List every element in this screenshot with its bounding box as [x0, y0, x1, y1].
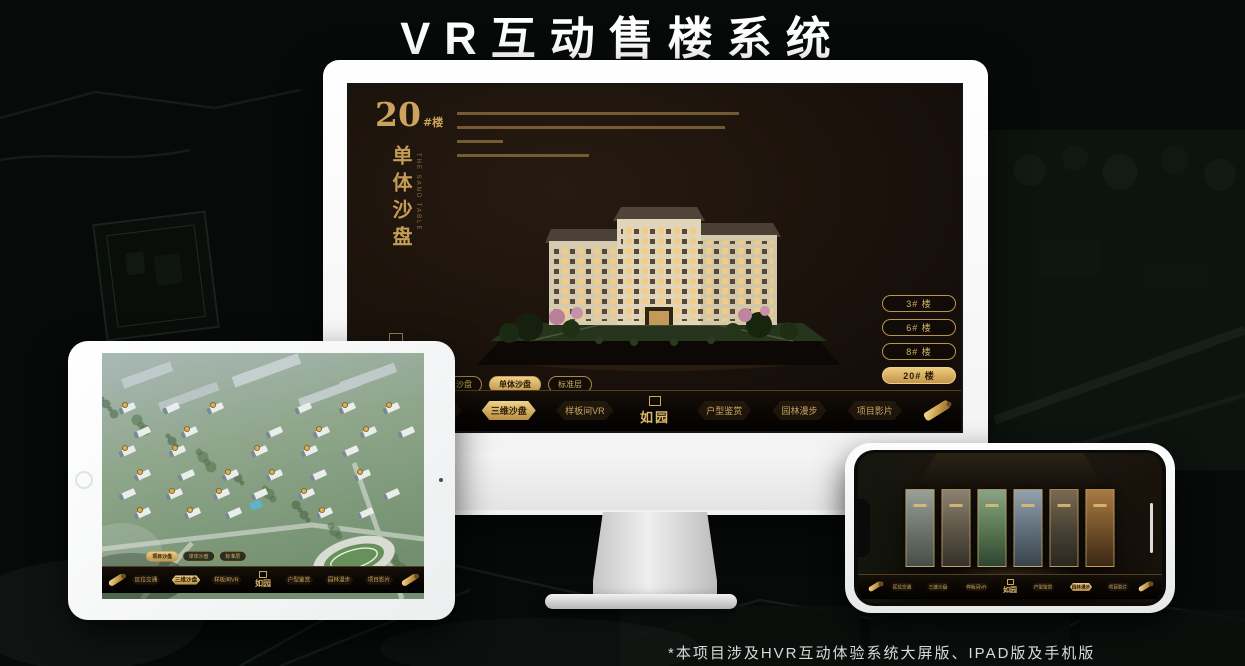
- nav-item[interactable]: 园林漫步: [325, 575, 354, 585]
- camera-dot-icon: [439, 478, 443, 482]
- nav-items: 区位交通三维沙盘样板间VR: [882, 581, 997, 593]
- floor-button[interactable]: 3# 楼: [882, 295, 956, 312]
- section-subtitle-en: THE SAND TABLE: [415, 153, 421, 231]
- nav-item[interactable]: 区位交通: [890, 583, 912, 591]
- logo-seal-icon: [259, 571, 267, 578]
- scroll-icon[interactable]: [868, 581, 883, 593]
- nav-item[interactable]: 项目影片: [1107, 583, 1129, 591]
- nav-item[interactable]: 户型鉴赏: [697, 401, 751, 420]
- iphone-device: 区位交通三维沙盘样板间VR如园户型鉴赏园林漫步项目影片: [845, 443, 1175, 613]
- gallery-panel[interactable]: [942, 489, 971, 567]
- masterplan-aerial-render[interactable]: [102, 353, 424, 599]
- app-logo-text: 如园: [1003, 585, 1017, 595]
- gallery-panels: [906, 489, 1115, 567]
- scroll-icon[interactable]: [1138, 581, 1153, 593]
- floor-button[interactable]: 20# 楼: [882, 367, 956, 384]
- subtab[interactable]: 标准层: [219, 551, 246, 562]
- phone-navbar: 区位交通三维沙盘样板间VR如园户型鉴赏园林漫步项目影片: [858, 574, 1162, 599]
- scene-ceiling: [918, 453, 1102, 485]
- gallery-panel[interactable]: [1086, 489, 1115, 567]
- nav-item[interactable]: 项目影片: [848, 401, 902, 420]
- monitor-stand-base: [545, 594, 737, 609]
- floor-button[interactable]: 6# 楼: [882, 319, 956, 336]
- poster-canvas: VR互动售楼系统 20#楼 单体沙盘 THE SAND TABLE: [0, 0, 1245, 666]
- scroll-icon[interactable]: [108, 572, 126, 586]
- nav-item[interactable]: 三维沙盘: [171, 575, 200, 585]
- nav-items: 户型鉴赏园林漫步项目影片: [277, 574, 401, 586]
- nav-item[interactable]: 样板间VR: [964, 583, 988, 591]
- gallery-panel[interactable]: [1014, 489, 1043, 567]
- gallery-panel[interactable]: [906, 489, 935, 567]
- app-logo: 如园: [249, 571, 277, 589]
- nav-item[interactable]: 户型鉴赏: [285, 575, 314, 585]
- nav-item[interactable]: 三维沙盘: [482, 401, 536, 420]
- footnote-caption: *本项目涉及HVR互动体验系统大屏版、IPAD版及手机版: [668, 642, 1095, 663]
- nav-item[interactable]: 园林漫步: [1069, 583, 1091, 591]
- nav-item[interactable]: 项目影片: [365, 575, 394, 585]
- app-logo-text: 如园: [640, 407, 670, 426]
- section-title-vertical: 单体沙盘: [387, 145, 416, 253]
- building-3d-render[interactable]: [449, 157, 869, 377]
- app-logo-text: 如园: [255, 578, 271, 589]
- app-logo: 如园: [634, 396, 676, 426]
- ipad-subtabs: 项目沙盘单体沙盘标准层: [146, 551, 246, 562]
- phone-screen: 区位交通三维沙盘样板间VR如园户型鉴赏园林漫步项目影片: [858, 453, 1162, 603]
- home-button[interactable]: [75, 471, 93, 489]
- scroll-icon[interactable]: [401, 572, 419, 586]
- scroll-icon[interactable]: [923, 399, 952, 421]
- building-number-title: 20#楼: [375, 95, 443, 134]
- nav-item[interactable]: 户型鉴赏: [1032, 583, 1054, 591]
- floor-button[interactable]: 8# 楼: [882, 343, 956, 360]
- nav-items: 区位交通三维沙盘样板间VR: [125, 574, 249, 586]
- notch: [858, 499, 870, 557]
- subtab[interactable]: 项目沙盘: [146, 551, 178, 562]
- logo-seal-icon: [649, 396, 661, 406]
- nav-items: 户型鉴赏园林漫步项目影片: [1023, 581, 1138, 593]
- subtab[interactable]: 单体沙盘: [183, 551, 215, 562]
- nav-item[interactable]: 三维沙盘: [927, 583, 949, 591]
- ipad-navbar: 区位交通三维沙盘样板间VR如园户型鉴赏园林漫步项目影片: [102, 566, 424, 593]
- monitor-stand-neck: [593, 512, 717, 598]
- home-indicator[interactable]: [1150, 503, 1153, 553]
- gallery-panel[interactable]: [978, 489, 1007, 567]
- ipad-device: 项目沙盘单体沙盘标准层 区位交通三维沙盘样板间VR如园户型鉴赏园林漫步项目影片: [68, 341, 455, 620]
- gallery-panel[interactable]: [1050, 489, 1079, 567]
- nav-item[interactable]: 园林漫步: [773, 401, 827, 420]
- app-logo: 如园: [997, 579, 1023, 595]
- nav-items: 户型鉴赏园林漫步项目影片: [676, 401, 923, 420]
- ipad-screen: 项目沙盘单体沙盘标准层 区位交通三维沙盘样板间VR如园户型鉴赏园林漫步项目影片: [102, 353, 424, 599]
- nav-item[interactable]: 区位交通: [132, 575, 161, 585]
- floor-button-group: 3# 楼6# 楼8# 楼20# 楼: [882, 295, 956, 384]
- nav-item[interactable]: 样板间VR: [556, 401, 614, 420]
- nav-item[interactable]: 样板间VR: [211, 575, 242, 585]
- page-title: VR互动售楼系统: [0, 2, 1245, 67]
